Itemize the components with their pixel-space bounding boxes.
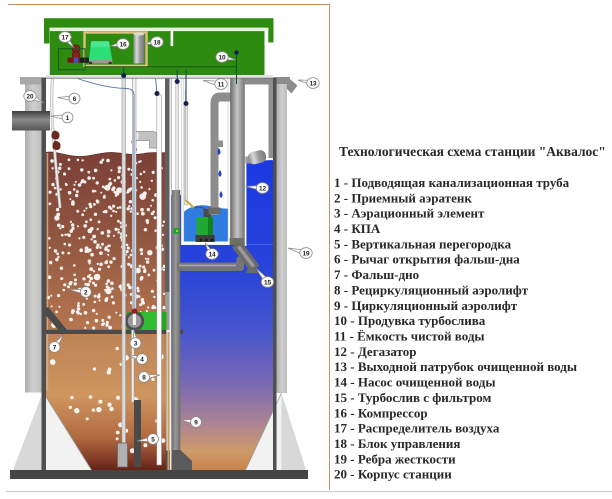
svg-text:2 - Приемный аэратенк: 2 - Приемный аэратенк <box>334 190 472 205</box>
svg-text:13 - Выходной патрубок очищенн: 13 - Выходной патрубок очищенной воды <box>334 359 577 374</box>
svg-text:12 - Дегазатор: 12 - Дегазатор <box>334 344 416 359</box>
svg-text:8: 8 <box>142 374 146 381</box>
svg-text:3: 3 <box>134 340 138 347</box>
svg-text:20 - Корпус станции: 20 - Корпус станции <box>334 467 452 482</box>
svg-text:16 - Компрессор: 16 - Компрессор <box>334 405 428 420</box>
svg-text:9 - Циркуляционный аэролифт: 9 - Циркуляционный аэролифт <box>334 298 518 313</box>
svg-text:15 - Турбослив с фильтром: 15 - Турбослив с фильтром <box>334 390 491 405</box>
svg-text:13: 13 <box>309 80 317 87</box>
svg-text:11: 11 <box>218 81 225 88</box>
svg-text:15: 15 <box>264 279 272 286</box>
svg-text:17: 17 <box>61 34 69 41</box>
svg-text:18 - Блок управления: 18 - Блок управления <box>334 436 460 451</box>
svg-text:10: 10 <box>218 54 226 61</box>
svg-text:6 - Рычаг открытия фальш-дна: 6 - Рычаг открытия фальш-дна <box>334 252 520 267</box>
svg-text:5 - Вертикальная перегородка: 5 - Вертикальная перегородка <box>334 236 512 251</box>
svg-text:11 - Ёмкость чистой воды: 11 - Ёмкость чистой воды <box>334 329 485 344</box>
svg-text:9: 9 <box>194 419 198 426</box>
svg-text:2: 2 <box>84 289 88 296</box>
svg-text:8 - Рециркуляционный аэролифт: 8 - Рециркуляционный аэролифт <box>334 282 529 297</box>
svg-text:17 - Распределитель воздуха: 17 - Распределитель воздуха <box>334 421 500 436</box>
svg-text:19: 19 <box>302 250 310 257</box>
svg-text:4: 4 <box>140 356 144 363</box>
svg-text:18: 18 <box>153 39 161 46</box>
svg-text:14 - Насос очищенной воды: 14 - Насос очищенной воды <box>334 375 495 390</box>
svg-text:7: 7 <box>53 344 57 351</box>
svg-text:1 - Подводящая канализационная: 1 - Подводящая канализационная труба <box>334 175 570 190</box>
svg-text:20: 20 <box>26 93 34 100</box>
svg-text:1: 1 <box>66 115 70 122</box>
svg-text:5: 5 <box>151 436 155 443</box>
svg-text:4 - КПА: 4 - КПА <box>334 221 381 236</box>
svg-text:Технологическая схема станции: Технологическая схема станции "Аквалос" <box>339 144 606 159</box>
svg-text:7 - Фальш-дно: 7 - Фальш-дно <box>334 267 419 282</box>
svg-text:3 - Аэрационный элемент: 3 - Аэрационный элемент <box>334 206 485 221</box>
svg-text:14: 14 <box>208 251 216 258</box>
svg-text:19 - Ребра жесткости: 19 - Ребра жесткости <box>334 451 456 466</box>
svg-text:16: 16 <box>119 41 127 48</box>
svg-text:12: 12 <box>259 185 267 192</box>
svg-text:10 - Продувка турбослива: 10 - Продувка турбослива <box>334 313 486 328</box>
svg-text:6: 6 <box>73 96 77 103</box>
